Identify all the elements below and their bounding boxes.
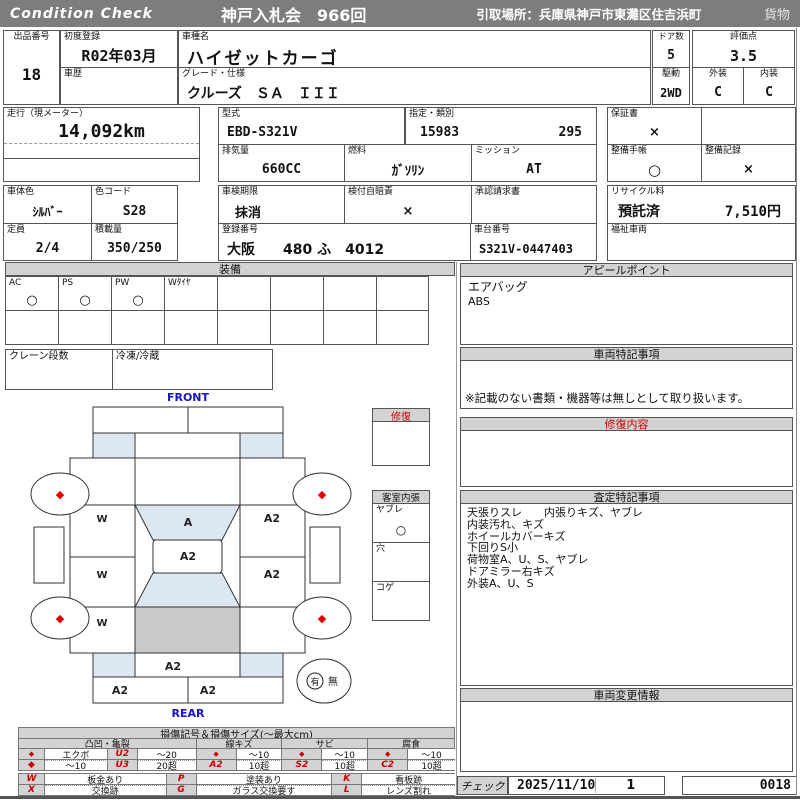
pickup-location: 引取場所：兵庫県神戸市東灘区住吉浜町 <box>476 4 701 23</box>
assessment-header: 査定特記事項 <box>460 490 793 504</box>
equipment-cell-wtire: Wﾀｲﾔ <box>164 276 218 311</box>
crane-stages-cell: クレーン段数 <box>5 349 113 390</box>
vehicle-history-cell: 車歴 <box>60 67 178 105</box>
right-edge-line <box>796 28 797 795</box>
wheel-front-right-mark: ◆ <box>318 488 327 501</box>
vehicle-notes-text: ※記載のない書類・機器等は無しとして取り扱います。 <box>461 390 753 408</box>
displacement-cell: 排気量 660CC <box>218 144 345 182</box>
wheel-rear-left-mark: ◆ <box>56 612 65 625</box>
transmission-cell: ミッション AT <box>471 144 597 182</box>
repair-box-title: 修復 <box>391 408 411 423</box>
equipment-ac-value: ○ <box>6 290 58 310</box>
equipment-cell-ps: PS ○ <box>58 276 112 311</box>
legend-l-desc: レンズ割れ <box>362 785 455 795</box>
registration-number-cell: 登録番号 大阪 480 ふ 4012 <box>218 223 471 261</box>
recycle-amount: 7,510円 <box>725 201 781 221</box>
legend-group-corrosion: 腐食 <box>368 739 455 748</box>
legend-sym: ◆ <box>19 760 45 770</box>
mark-roof: A2 <box>180 550 196 563</box>
check-date-cell: 2025/11/10 1 <box>508 776 665 795</box>
change-info-title: 車両変更情報 <box>594 687 660 703</box>
grade-cell: グレード・仕様 クルーズ ＳＡ ＩＩＩ <box>178 67 651 105</box>
legend-val: 〜10 <box>237 749 283 759</box>
equipment-row2-2 <box>58 310 112 345</box>
fuel-label: 燃料 <box>345 145 471 158</box>
bottom-border-line <box>0 796 800 799</box>
chassis-number-label: 車台番号 <box>471 224 596 237</box>
auction-sheet: Condition Check 神戸入札会 966回 引取場所：兵庫県神戸市東灘… <box>0 0 800 800</box>
legend-val: 10超 <box>237 760 283 770</box>
legend-val: エクボ <box>45 749 108 759</box>
recycle-fee-label: リサイクル料 <box>608 186 795 199</box>
equipment-row2-5 <box>217 310 271 345</box>
maintenance-book-cell: 整備手帳 ○ <box>607 144 702 182</box>
drive-value: 2WD <box>653 81 689 104</box>
assessment-line: 内装汚れ、キズ <box>467 519 786 531</box>
cabin-burn-label: コゲ <box>373 582 429 595</box>
equipment-row2-6 <box>270 310 324 345</box>
grade-label: グレード・仕様 <box>179 68 650 81</box>
load-capacity-value: 350/250 <box>92 237 177 260</box>
repair-box-body <box>372 422 430 466</box>
load-capacity-label: 積載量 <box>92 224 177 237</box>
auction-title: 神戸入札会 966回 <box>221 2 366 26</box>
displacement-value: 660CC <box>219 158 344 181</box>
model-code-value: EBD-S321V <box>219 121 404 144</box>
grade-value: クルーズ ＳＡ ＩＩＩ <box>179 81 650 104</box>
diagram-front-label: FRONT <box>167 391 210 404</box>
rear-fender-right <box>240 653 283 677</box>
equipment-pw-label: PW <box>112 277 164 290</box>
spare-absent-text: 無 <box>328 675 338 688</box>
interior-grade-label: 内装 <box>744 68 794 81</box>
check-date-value: 2025/11/10 <box>509 778 595 793</box>
welfare-vehicle-cell: 福祉車両 <box>607 223 796 261</box>
exterior-grade-cell: 外装 C <box>692 67 744 105</box>
legend-k-desc: 看板跡 <box>362 774 455 784</box>
score-cell: 評価点 3.5 <box>692 30 795 68</box>
crane-stages-label: クレーン段数 <box>6 350 112 363</box>
doors-cell: ドア数 5 <box>652 30 690 68</box>
color-code-cell: 色コード S28 <box>91 185 178 224</box>
inspection-label: 車検期限 <box>219 186 344 199</box>
appeal-line-airbag: エアバッグ <box>468 280 785 295</box>
color-code-value: S28 <box>92 199 177 223</box>
left-side-sill <box>34 527 64 583</box>
chassis-number-cell: 車台番号 S321V-0447403 <box>470 223 597 261</box>
mileage-value: 14,092km <box>4 121 199 143</box>
mark-left-panel-1: W <box>96 514 107 525</box>
rear-fender-left <box>93 653 135 677</box>
appeal-body: エアバッグ ABS <box>460 277 793 345</box>
score-label: 評価点 <box>693 31 794 44</box>
equipment-pw-value: ○ <box>112 290 164 310</box>
body-color-value: ｼﾙﾊﾞｰ <box>4 199 91 223</box>
insurance-label: 検付自賠責 <box>345 186 471 199</box>
equipment-wtire-label: Wﾀｲﾔ <box>165 277 217 290</box>
exterior-grade-label: 外装 <box>693 68 743 81</box>
cabin-box-title: 客室内張 <box>382 490 420 504</box>
spare-tire-indicator <box>297 659 351 703</box>
color-code-label: 色コード <box>92 186 177 199</box>
legend-k-sym: K <box>332 774 362 784</box>
vehicle-notes-body: ※記載のない書類・機器等は無しとして取り扱います。 <box>460 361 793 409</box>
legend-val: 20超 <box>138 760 197 770</box>
first-registration-value: R02年03月 <box>61 44 177 67</box>
equipment-cell-empty-4 <box>376 276 429 311</box>
vehicle-category: 貨物 <box>764 4 790 23</box>
warranty-value: × <box>608 121 701 144</box>
damage-legend-symbols: W 板金あり P 塗装あり K 看板跡 X 交換跡 G ガラス交換要す L レン… <box>18 773 455 796</box>
model-code-label: 型式 <box>219 108 404 121</box>
doors-label: ドア数 <box>653 31 689 44</box>
cabin-box-header: 客室内張 <box>372 490 430 504</box>
mark-windshield: A <box>184 516 193 529</box>
cabin-hole-cell: 穴 <box>372 542 430 582</box>
legend-sym: S2 <box>282 760 322 770</box>
registration-number-label: 登録番号 <box>219 224 470 237</box>
maintenance-record-cell: 整備記録 × <box>701 144 796 182</box>
legend-sym: C2 <box>368 760 408 770</box>
appeal-header: アピールポイント <box>460 263 793 277</box>
mileage-cell: 走行（現メーター） 14,092km <box>3 107 200 182</box>
repair-content-header: 修復内容 <box>460 417 793 431</box>
legend-val: 10超 <box>408 760 455 770</box>
mileage-label: 走行（現メーター） <box>4 108 199 121</box>
warranty-label: 保証書 <box>608 108 701 121</box>
equipment-title: 装備 <box>219 261 241 277</box>
fridge-freezer-label: 冷凍/冷蔵 <box>113 350 272 363</box>
legend-w-sym: W <box>19 774 45 784</box>
legend-val: 10超 <box>322 760 368 770</box>
interior-grade-value: C <box>744 81 794 104</box>
legend-g-desc: ガラス交換要す <box>197 785 333 795</box>
legend-val: 〜10 <box>45 760 108 770</box>
mileage-divider-dashed <box>4 143 199 158</box>
recycle-status: 預託済 <box>618 201 660 221</box>
equipment-cell-pw: PW ○ <box>111 276 165 311</box>
class-value-2: 295 <box>559 125 582 140</box>
cabin-hole-label: 穴 <box>373 543 429 556</box>
car-damage-diagram: FRONT ◆ ◆ ◆ <box>8 390 368 725</box>
transmission-label: ミッション <box>472 145 596 158</box>
rear-gate-shaded-panel <box>135 607 240 653</box>
assessment-line: ドアミラー右キズ <box>467 566 786 578</box>
equipment-row2-4 <box>164 310 218 345</box>
welfare-vehicle-label: 福祉車両 <box>608 224 795 237</box>
change-info-body <box>460 702 793 772</box>
legend-sym: ◆ <box>197 749 237 759</box>
warranty-cell: 保証書 × <box>607 107 702 145</box>
fuel-cell: 燃料 ｶﾞｿﾘﾝ <box>344 144 472 182</box>
legend-sym: U2 <box>108 749 138 759</box>
legend-group-dents: 凸凹・亀裂 <box>19 739 197 748</box>
column-divider-line <box>456 262 457 795</box>
capacity-label: 定員 <box>4 224 91 237</box>
maintenance-record-label: 整備記録 <box>702 145 795 158</box>
inspection-cell: 車検期限 抹消 <box>218 185 345 224</box>
check-count-value: 1 <box>595 778 635 793</box>
maintenance-record-value: × <box>702 158 795 181</box>
chassis-number-value: S321V-0447403 <box>471 237 596 260</box>
legend-sym: U3 <box>108 760 138 770</box>
check-number-value: 0018 <box>760 778 796 793</box>
exterior-grade-value: C <box>693 81 743 104</box>
header-bar: Condition Check 神戸入札会 966回 引取場所：兵庫県神戸市東灘… <box>0 0 800 27</box>
legend-group-rust: サビ <box>282 739 368 748</box>
drive-cell: 駆動 2WD <box>652 67 690 105</box>
repair-box-header: 修復 <box>372 408 430 422</box>
equipment-header: 装備 <box>5 262 455 276</box>
mark-rear-bumper-right: A2 <box>200 684 216 697</box>
wheel-rear-right-mark: ◆ <box>318 612 327 625</box>
first-registration-cell: 初度登録 R02年03月 <box>60 30 178 68</box>
lot-number-cell: 出品番号 18 <box>3 30 60 105</box>
appeal-title: アピールポイント <box>583 262 671 278</box>
warranty-spare-cell <box>701 107 796 145</box>
inspection-value: 抹消 <box>219 199 344 223</box>
maintenance-book-value: ○ <box>608 158 701 181</box>
damage-legend: 損傷記号＆損傷サイズ(〜最大cm) 凸凹・亀裂 線キズ サビ 腐食 ◆ エクボ … <box>18 727 455 771</box>
recycle-fee-cell: リサイクル料 預託済 7,510円 <box>607 185 796 224</box>
rear-glass-panel <box>135 573 240 607</box>
change-info-header: 車両変更情報 <box>460 688 793 702</box>
equipment-cell-ac: AC ○ <box>5 276 59 311</box>
class-values: 15983 295 <box>406 121 596 144</box>
legend-group-scratch: 線キズ <box>197 739 283 748</box>
repair-content-body <box>460 431 793 487</box>
spare-present-text: 有 <box>310 676 319 688</box>
equipment-cell-empty-2 <box>270 276 324 311</box>
score-value: 3.5 <box>693 44 794 67</box>
approval-request-label: 承認請求書 <box>472 186 596 199</box>
assessment-body: 天張りスレ 内張りキズ、ヤブレ 内装汚れ、キズ ホイールカバーキズ 下回りS小 … <box>460 504 793 686</box>
first-registration-label: 初度登録 <box>61 31 177 44</box>
interior-grade-cell: 内装 C <box>743 67 795 105</box>
assessment-title: 査定特記事項 <box>594 489 660 505</box>
equipment-row2-3 <box>111 310 165 345</box>
legend-sym: ◆ <box>282 749 322 759</box>
displacement-label: 排気量 <box>219 145 344 158</box>
maintenance-book-label: 整備手帳 <box>608 145 701 158</box>
legend-p-desc: 塗装あり <box>197 774 333 784</box>
legend-title: 損傷記号＆損傷サイズ(〜最大cm) <box>19 728 455 738</box>
equipment-row2-1 <box>5 310 59 345</box>
legend-x-desc: 交換跡 <box>45 785 167 795</box>
cabin-tear-label: ヤブレ <box>373 504 429 517</box>
body-color-cell: 車体色 ｼﾙﾊﾞｰ <box>3 185 92 224</box>
transmission-value: AT <box>472 158 596 181</box>
legend-sym: ◆ <box>19 749 45 759</box>
legend-w-desc: 板金あり <box>45 774 167 784</box>
mark-rear-bumper-left: A2 <box>112 684 128 697</box>
repair-content-title: 修復内容 <box>605 416 649 432</box>
right-side-sill <box>310 527 340 583</box>
model-name-label: 車種名 <box>179 31 650 44</box>
class-value-1: 15983 <box>420 125 459 140</box>
legend-val: 〜10 <box>322 749 368 759</box>
legend-val: 〜10 <box>408 749 455 759</box>
insurance-cell: 検付自賠責 × <box>344 185 472 224</box>
legend-x-sym: X <box>19 785 45 795</box>
diagram-rear-label: REAR <box>172 707 205 720</box>
cabin-burn-cell: コゲ <box>372 581 430 621</box>
mileage-divider-solid <box>4 158 199 181</box>
vehicle-notes-header: 車両特記事項 <box>460 347 793 361</box>
cabin-tear-cell: ヤブレ ○ <box>372 504 430 543</box>
mark-left-panel-2: W <box>96 570 107 581</box>
legend-sym: ◆ <box>368 749 408 759</box>
legend-g-sym: G <box>167 785 197 795</box>
body-color-label: 車体色 <box>4 186 91 199</box>
approval-request-cell: 承認請求書 <box>471 185 597 224</box>
cabin-tear-value: ○ <box>373 517 429 542</box>
legend-val: 〜20 <box>138 749 197 759</box>
legend-p-sym: P <box>167 774 197 784</box>
mark-rear-gate: A2 <box>165 660 181 673</box>
mark-left-panel-3: W <box>96 618 107 629</box>
front-fender-left <box>93 433 135 458</box>
doors-value: 5 <box>653 44 689 67</box>
legend-sym: A2 <box>197 760 237 770</box>
equipment-cell-empty-1 <box>217 276 271 311</box>
lot-number-value: 18 <box>4 44 59 104</box>
model-code-cell: 型式 EBD-S321V <box>218 107 405 145</box>
equipment-ps-value: ○ <box>59 290 111 310</box>
front-fender-right <box>240 433 283 458</box>
equipment-cell-empty-3 <box>323 276 377 311</box>
capacity-value: 2/4 <box>4 237 91 260</box>
assessment-line: 外装A、U、S <box>467 578 786 590</box>
insurance-value: × <box>345 199 471 223</box>
fuel-value: ｶﾞｿﾘﾝ <box>345 158 471 181</box>
fridge-freezer-cell: 冷凍/冷蔵 <box>112 349 273 390</box>
equipment-row2-7 <box>323 310 377 345</box>
appeal-line-abs: ABS <box>468 295 785 309</box>
registration-number-value: 大阪 480 ふ 4012 <box>219 237 470 260</box>
load-capacity-cell: 積載量 350/250 <box>91 223 178 261</box>
vehicle-history-label: 車歴 <box>61 68 177 81</box>
brand-logo: Condition Check <box>10 6 153 22</box>
mark-right-panel-lower: A2 <box>264 568 280 581</box>
model-name-value: ハイゼットカーゴ <box>179 44 650 69</box>
check-label: チェック <box>461 778 505 794</box>
recycle-fee-values: 預託済 7,510円 <box>608 199 795 223</box>
drive-label: 駆動 <box>653 68 689 81</box>
equipment-row2-8 <box>376 310 429 345</box>
capacity-cell: 定員 2/4 <box>3 223 92 261</box>
equipment-ps-label: PS <box>59 277 111 290</box>
model-name-cell: 車種名 ハイゼットカーゴ <box>178 30 651 68</box>
legend-l-sym: L <box>332 785 362 795</box>
check-label-cell: チェック <box>457 776 508 795</box>
class-cell: 指定・類別 15983 295 <box>405 107 597 145</box>
lot-number-label: 出品番号 <box>4 31 59 44</box>
check-number-cell: 0018 <box>682 776 797 795</box>
equipment-ac-label: AC <box>6 277 58 290</box>
class-label: 指定・類別 <box>406 108 596 121</box>
wheel-front-left-mark: ◆ <box>56 488 65 501</box>
vehicle-notes-title: 車両特記事項 <box>594 346 660 362</box>
mark-right-panel-upper: A2 <box>264 512 280 525</box>
